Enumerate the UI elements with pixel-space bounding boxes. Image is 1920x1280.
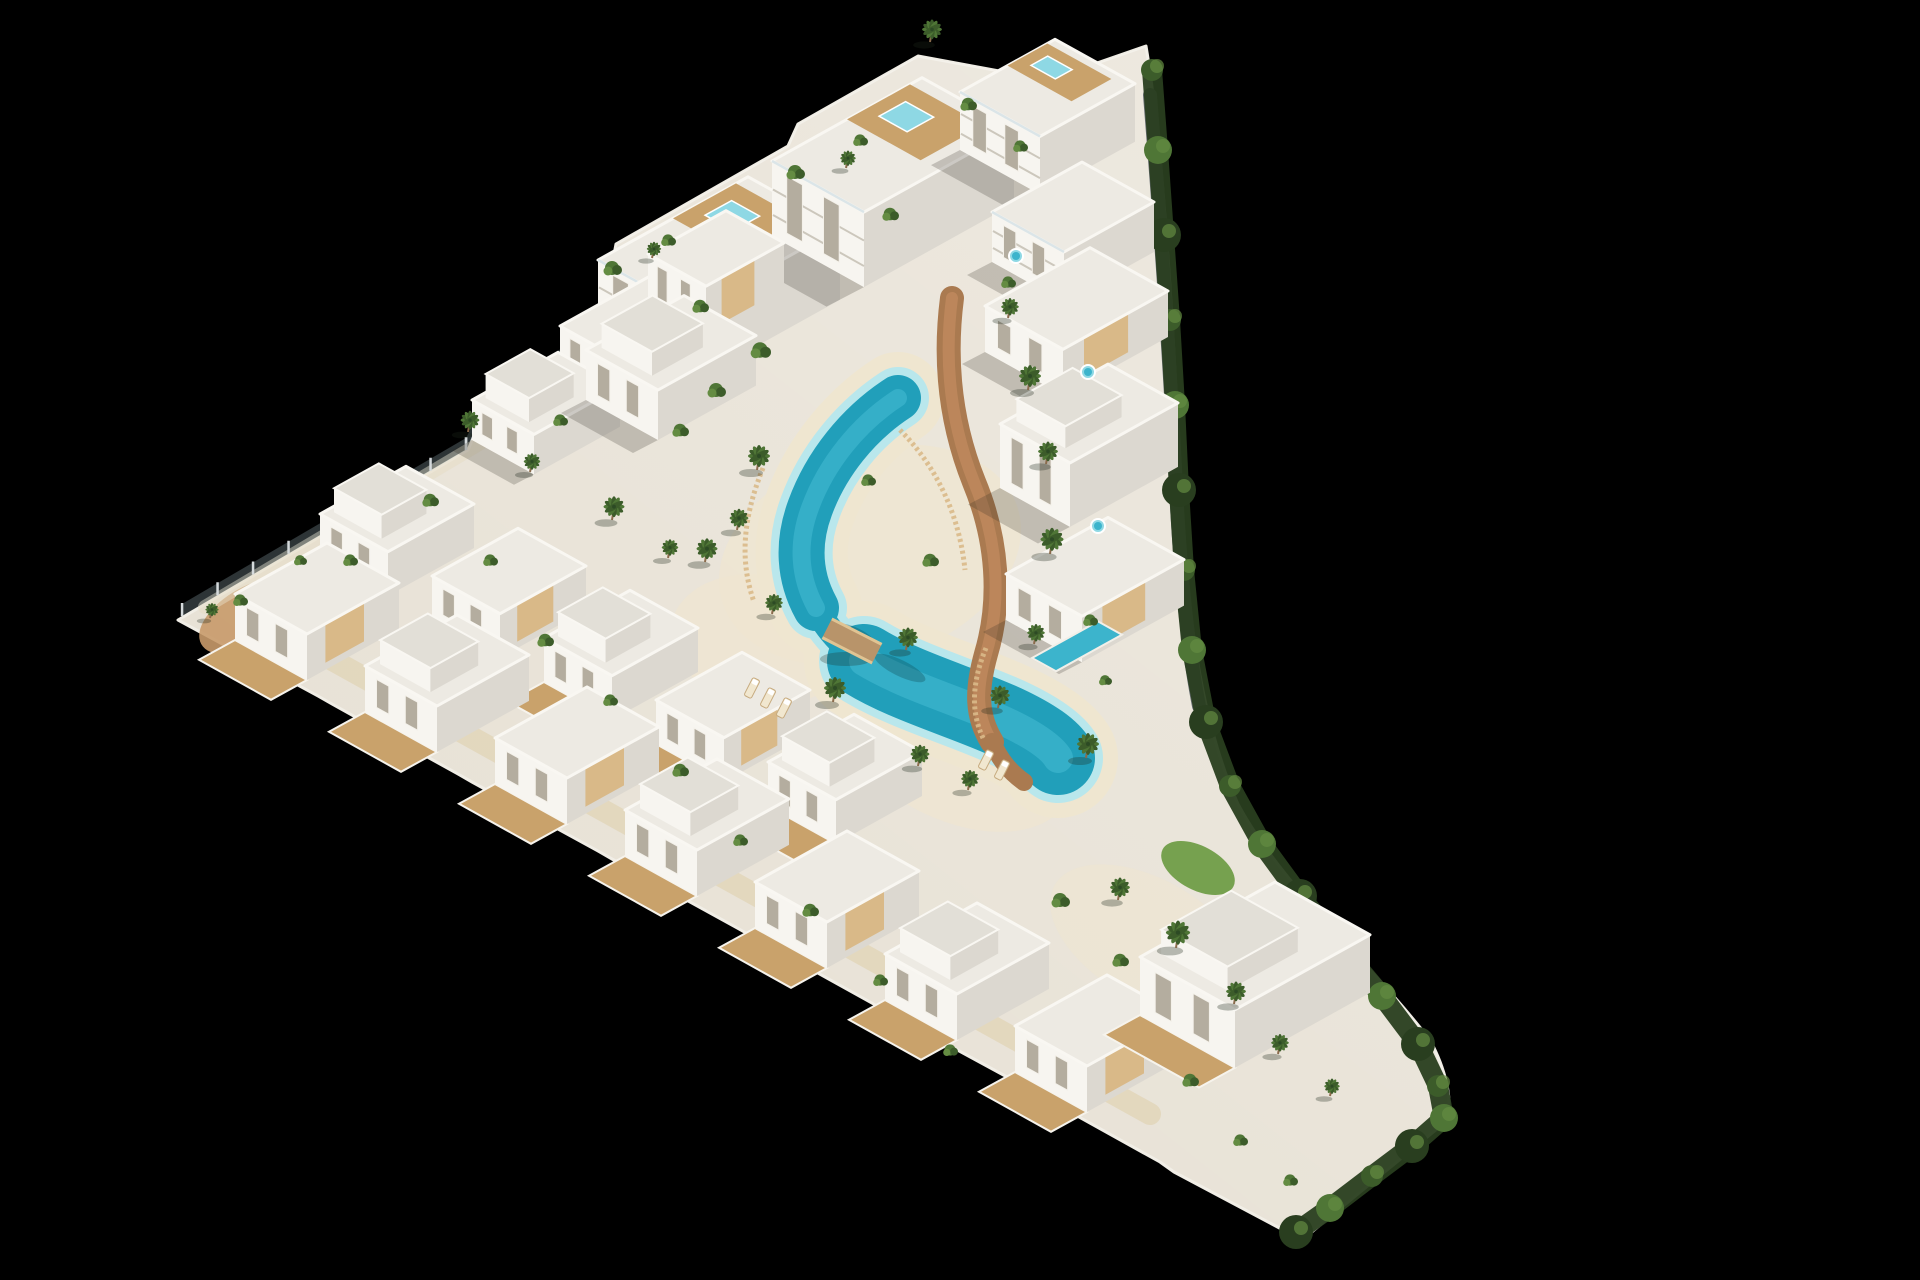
palm-crown (847, 157, 850, 160)
palm-shadow (1101, 899, 1123, 906)
palm-crown (612, 505, 616, 509)
window (377, 679, 389, 714)
window (767, 895, 779, 930)
palm-crown (1008, 305, 1011, 308)
hedge-bush (1410, 1135, 1424, 1149)
window (925, 983, 937, 1018)
window (824, 197, 840, 263)
palm-shadow (913, 41, 935, 48)
palm-crown (757, 454, 761, 458)
palm-crown (918, 752, 921, 755)
window (973, 106, 987, 154)
window (1039, 453, 1051, 506)
palm-shadow (815, 701, 839, 709)
palm-crown (1234, 990, 1238, 994)
hedge-bush (1162, 224, 1176, 238)
jacuzzi (1091, 519, 1105, 533)
window (1011, 437, 1023, 490)
palm-crown (737, 516, 740, 519)
window (275, 623, 287, 658)
palm-shadow (515, 472, 533, 478)
site-plan-render (0, 0, 1920, 1280)
palm-crown (1118, 886, 1122, 890)
window (787, 176, 803, 242)
palm-shadow (721, 530, 741, 537)
window (665, 839, 677, 874)
palm-shadow (832, 168, 849, 174)
jacuzzi (1009, 249, 1023, 263)
palm-shadow (981, 707, 1003, 714)
hedge-bush (1442, 1107, 1456, 1121)
palm-crown (1050, 537, 1054, 541)
palm-crown (1034, 631, 1037, 634)
palm-crown (833, 686, 837, 690)
hedge-bush (1228, 775, 1242, 789)
fence-post (216, 582, 219, 595)
hedge-bush (1190, 639, 1204, 653)
palm-shadow (1262, 1054, 1281, 1060)
window (247, 607, 259, 642)
window (897, 967, 909, 1002)
jacuzzi (1081, 365, 1095, 379)
palm-crown (772, 601, 775, 604)
window (1027, 1039, 1039, 1074)
fence-post (252, 562, 255, 575)
palm-crown (998, 694, 1002, 698)
palm-crown (968, 777, 971, 780)
palm-crown (930, 28, 934, 32)
window (405, 695, 417, 730)
hedge-bush (1436, 1075, 1450, 1089)
window (535, 767, 547, 802)
palm-shadow (1018, 644, 1037, 650)
palm-crown (906, 636, 910, 640)
hedge-bush (1294, 1221, 1308, 1235)
hedge-bush (1204, 711, 1218, 725)
hedge-bush (1260, 833, 1274, 847)
hedge-bush (1156, 139, 1170, 153)
palm-shadow (1217, 1003, 1239, 1010)
hedge-bush (1380, 985, 1394, 999)
palm-shadow (638, 258, 654, 263)
palm-crown (211, 608, 213, 610)
palm-crown (653, 248, 656, 251)
palm-crown (1028, 374, 1032, 378)
palm-shadow (653, 558, 671, 564)
palm-shadow (197, 619, 211, 624)
palm-shadow (688, 561, 711, 569)
palm-crown (1046, 450, 1050, 454)
palm-shadow (452, 432, 472, 439)
palm-shadow (952, 790, 971, 796)
hedge-bush (1416, 1033, 1430, 1047)
palm-shadow (739, 469, 763, 477)
palm-crown (468, 418, 471, 421)
palm-shadow (1029, 463, 1051, 470)
hedge-bush (1370, 1165, 1384, 1179)
palm-shadow (595, 519, 618, 527)
palm-crown (1331, 1085, 1334, 1088)
fence-post (181, 603, 184, 616)
palm-shadow (1010, 389, 1034, 397)
palm-shadow (1316, 1096, 1333, 1102)
window (507, 751, 519, 786)
palm-shadow (902, 766, 922, 773)
fence-post (287, 541, 290, 554)
palm-crown (531, 460, 534, 463)
window (637, 823, 649, 858)
palm-shadow (992, 318, 1011, 324)
palm-crown (705, 547, 709, 551)
window (626, 379, 638, 418)
render-canvas (0, 0, 1920, 1280)
hedge-bush (1150, 59, 1164, 73)
palm-shadow (1157, 947, 1183, 956)
window (1055, 1055, 1067, 1090)
window (1155, 972, 1171, 1021)
window (598, 363, 610, 402)
fence-post (429, 458, 432, 471)
palm-crown (1086, 742, 1090, 746)
palm-crown (1278, 1041, 1281, 1044)
window (1193, 994, 1209, 1043)
palm-shadow (889, 649, 911, 656)
palm-crown (1176, 930, 1180, 934)
hedge-bush (1328, 1197, 1342, 1211)
hedge-bush (1168, 309, 1182, 323)
palm-shadow (1068, 757, 1092, 765)
palm-shadow (1031, 553, 1056, 561)
palm-shadow (756, 614, 775, 620)
palm-crown (669, 546, 672, 549)
hedge-bush (1177, 479, 1191, 493)
